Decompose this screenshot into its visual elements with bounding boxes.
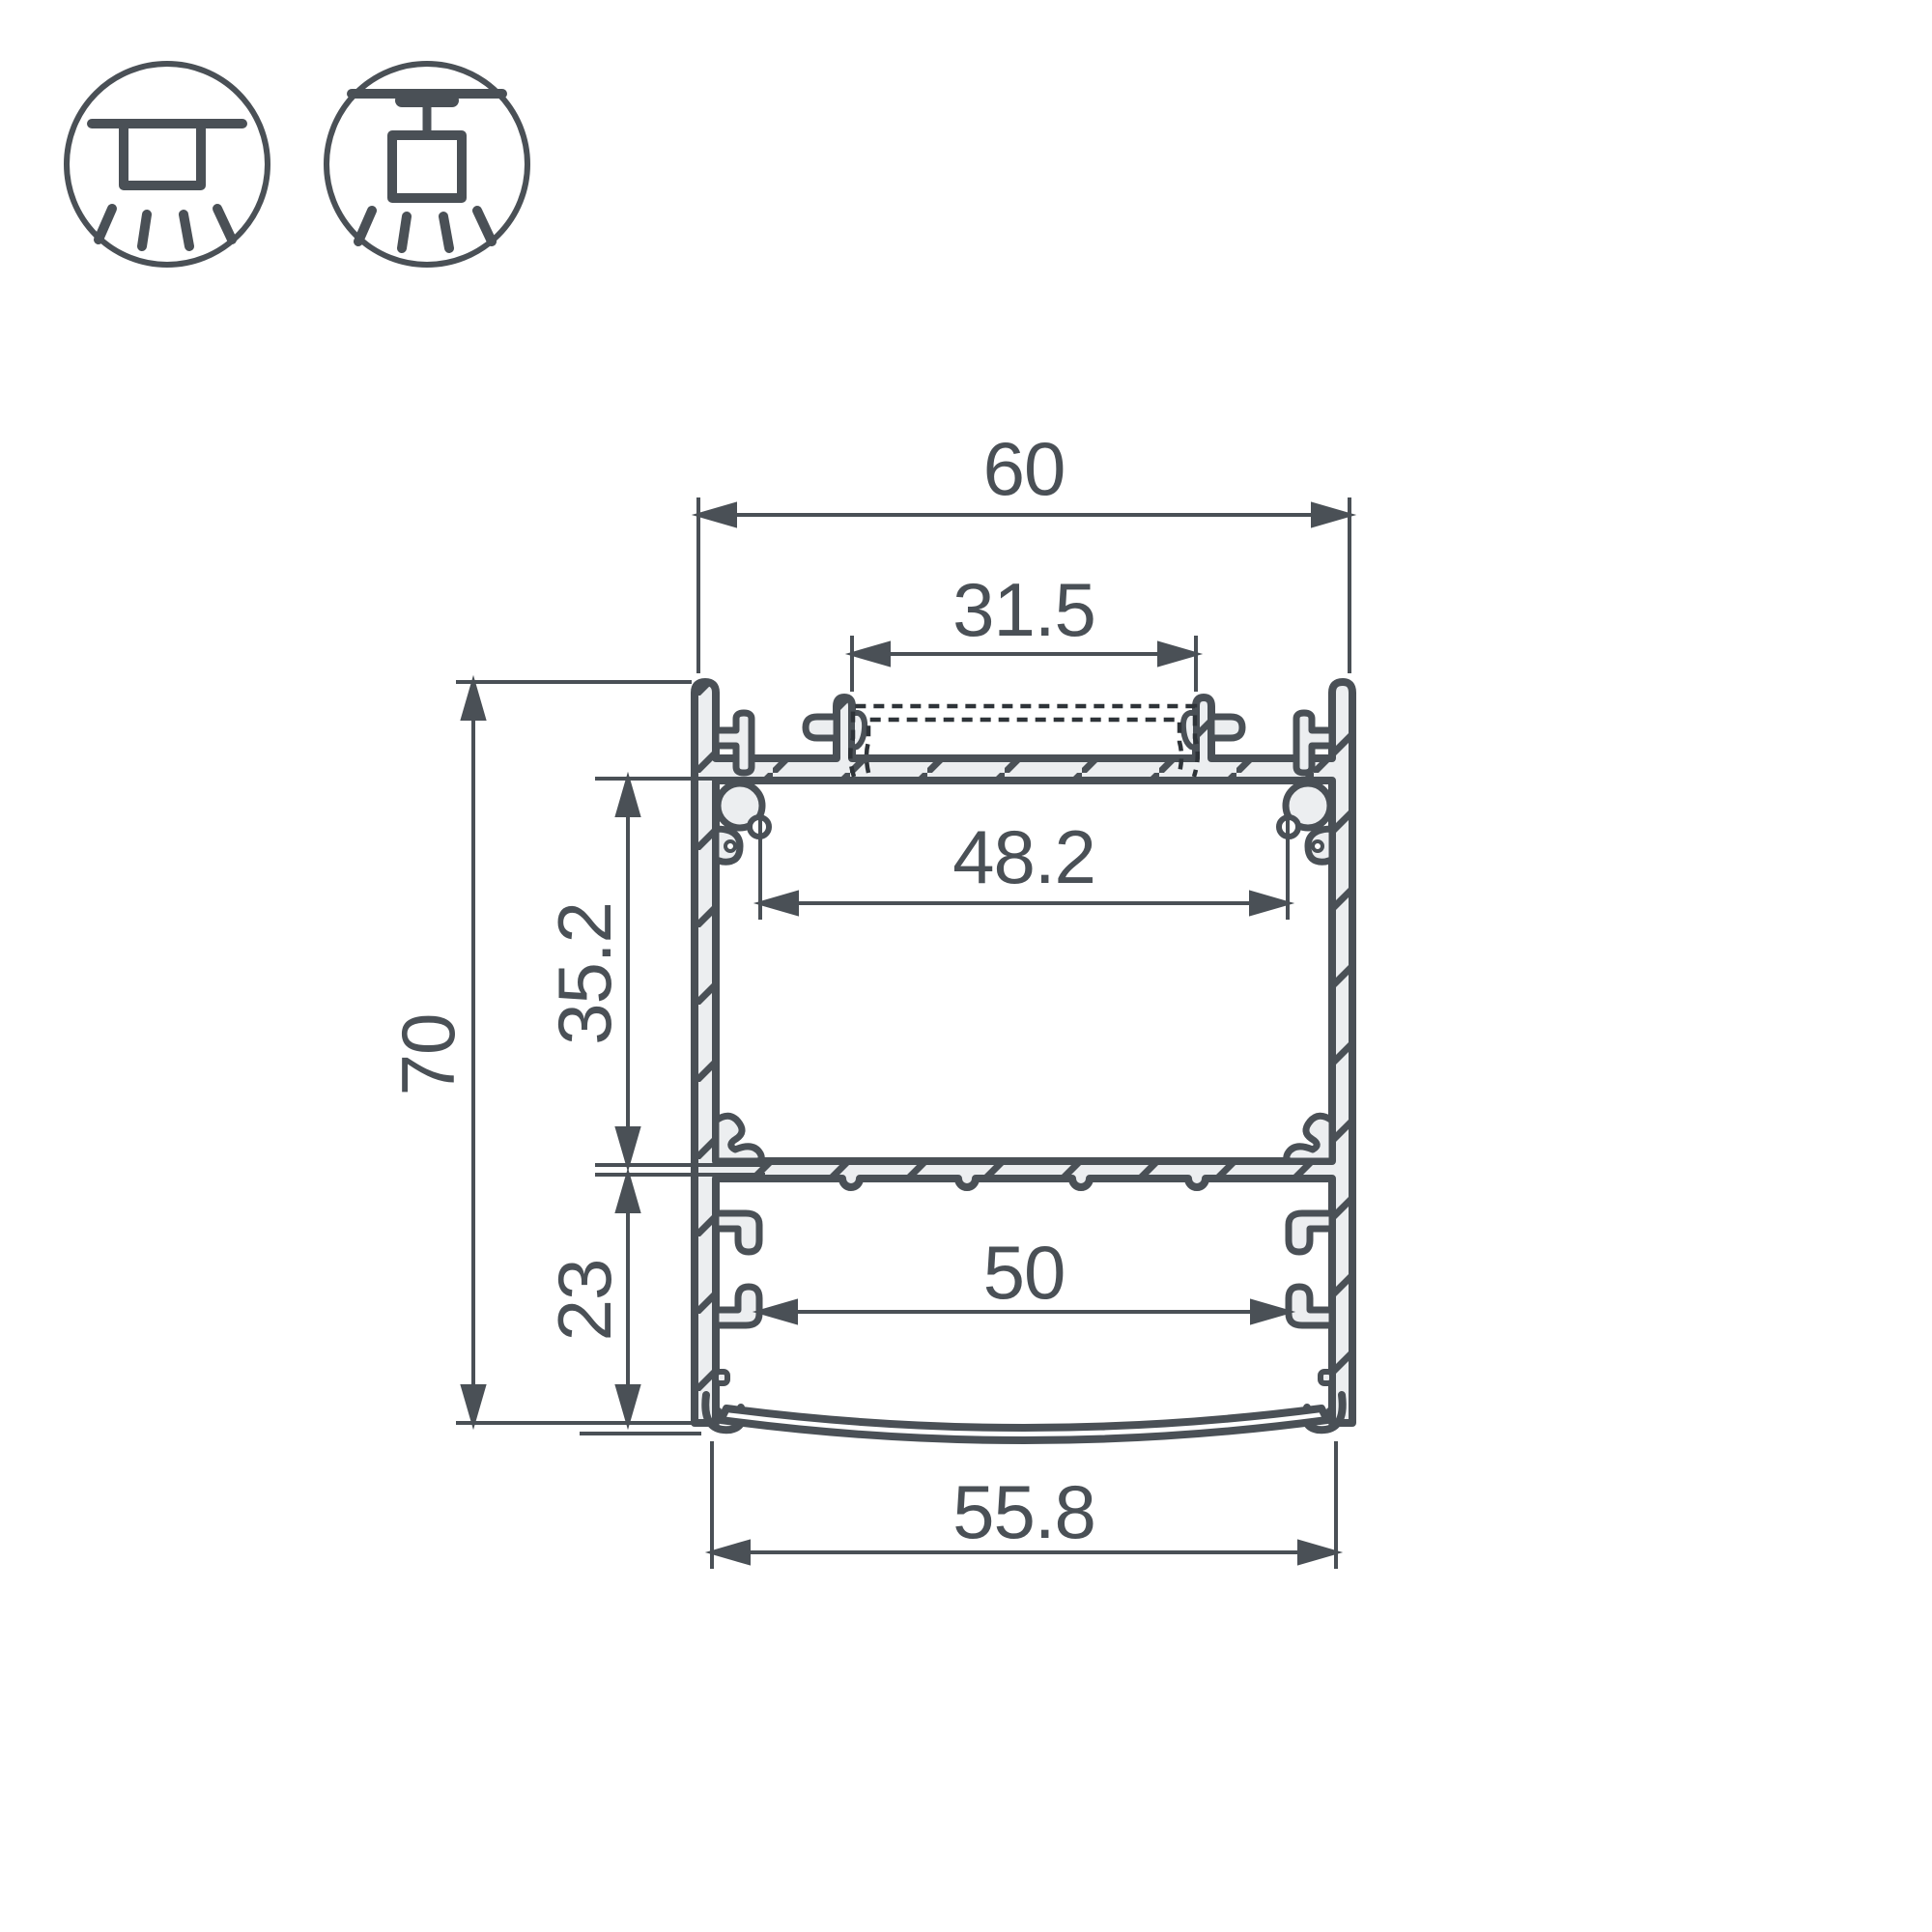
arrowhead: [617, 779, 639, 815]
profile-cross-section: [695, 682, 1352, 1440]
arrowhead: [1252, 1301, 1289, 1322]
lip-arm-right: [1211, 717, 1242, 738]
clip-left-upper: [716, 1213, 759, 1252]
dim-top-channel-width-label: 31.5: [952, 567, 1095, 652]
separator-curl-right: [1287, 1116, 1332, 1161]
dim-upper-chamber-height-label: 35.2: [542, 902, 627, 1045]
light-rays-icon: [99, 209, 232, 246]
arrowhead: [463, 1386, 484, 1423]
dim-overall-width-label: 60: [983, 426, 1065, 511]
arrowhead: [617, 1128, 639, 1165]
light-rays-icon: [358, 211, 492, 248]
clip-right-lower: [1289, 1287, 1332, 1325]
arrowhead: [759, 1301, 796, 1322]
dim-lower-chamber-height-label: 23: [542, 1260, 627, 1342]
arrowhead: [852, 643, 889, 665]
dim-inner-width-label: 48.2: [952, 814, 1095, 899]
arrowhead: [1159, 643, 1196, 665]
arrowhead: [463, 682, 484, 719]
arrowhead: [1251, 893, 1288, 914]
dim-lower-inner-width-label: 50: [983, 1230, 1065, 1315]
clip-left-lower: [716, 1287, 759, 1325]
surface-mount-icon: [67, 64, 268, 265]
lip-arm-left: [806, 717, 837, 738]
arrowhead: [1313, 504, 1350, 526]
arrowhead: [698, 504, 735, 526]
technical-drawing-canvas: 60 31.5 48.2 50 55.8 70 35.2 23: [0, 0, 1932, 1932]
clip-right-upper: [1289, 1213, 1332, 1252]
arrowhead: [760, 893, 797, 914]
arrowhead: [712, 1542, 749, 1563]
pendant-mount-icon: [327, 64, 527, 265]
arrowhead: [1299, 1542, 1336, 1563]
dim-overall-height-label: 70: [385, 1014, 470, 1096]
lens-nub-left: [716, 1372, 727, 1383]
diffuser-lens: [721, 1408, 1327, 1440]
arrowhead: [617, 1175, 639, 1211]
lens-nub-right: [1321, 1372, 1332, 1383]
dim-diffuser-width-label: 55.8: [952, 1469, 1095, 1554]
separator-curl-left: [716, 1116, 761, 1161]
arrowhead: [617, 1386, 639, 1423]
